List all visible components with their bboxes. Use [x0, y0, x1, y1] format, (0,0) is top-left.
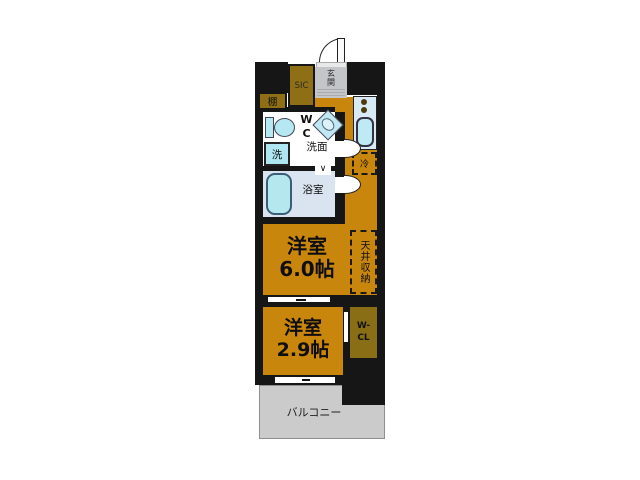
burner-icon: [361, 99, 367, 105]
room-main-label: 洋室 6.0帖: [268, 227, 346, 289]
basin-label: 洗面: [299, 140, 335, 153]
toilet-bowl-icon: [274, 118, 295, 137]
entrance-label: 玄関: [318, 68, 344, 88]
wall-segment: [255, 62, 288, 93]
bath-door-mark: ∨: [315, 163, 331, 175]
burner-icon: [361, 107, 367, 113]
toilet-tank-icon: [265, 117, 274, 138]
wall-segment: [255, 92, 263, 385]
wall-segment: [377, 95, 385, 375]
wcl-label: CL: [357, 333, 369, 345]
window-tick: [302, 379, 310, 381]
wcl-closet: W- CL: [350, 307, 377, 358]
wall-segment: [347, 62, 385, 95]
washer-label: 洗: [272, 147, 283, 162]
pipe-space-block: [342, 385, 385, 405]
entrance-door-leaf-icon: [337, 38, 345, 63]
kitchen-sink-icon: [356, 117, 374, 147]
bathtub-icon: [266, 173, 292, 215]
entrance-step-lines: [317, 87, 345, 97]
sic-label: SIC: [295, 81, 309, 91]
shelf-box: 棚: [258, 92, 287, 110]
fridge-label: 冷: [360, 157, 369, 170]
sliding-door-tick: [296, 299, 306, 301]
washer-box: 洗: [264, 142, 290, 166]
room-sub-label: 洋室 2.9帖: [266, 310, 340, 370]
wcl-label: W-: [357, 321, 370, 333]
shelf-label: 棚: [268, 94, 278, 108]
ceiling-storage-label: 天井収納: [356, 240, 371, 284]
bath-label: 浴室: [294, 182, 332, 196]
ceiling-storage-box: 天井収納: [350, 230, 377, 294]
wcl-sliding-door: [344, 312, 348, 342]
balcony-label: バルコニー: [259, 404, 369, 420]
floorplan-canvas: 玄関 SIC 棚 W C 洗面 洗 浴室 ∨ 冷 洋室 6.0帖 天井収納: [0, 0, 640, 480]
wall-segment: [255, 217, 345, 224]
sic-closet: SIC: [288, 64, 315, 107]
